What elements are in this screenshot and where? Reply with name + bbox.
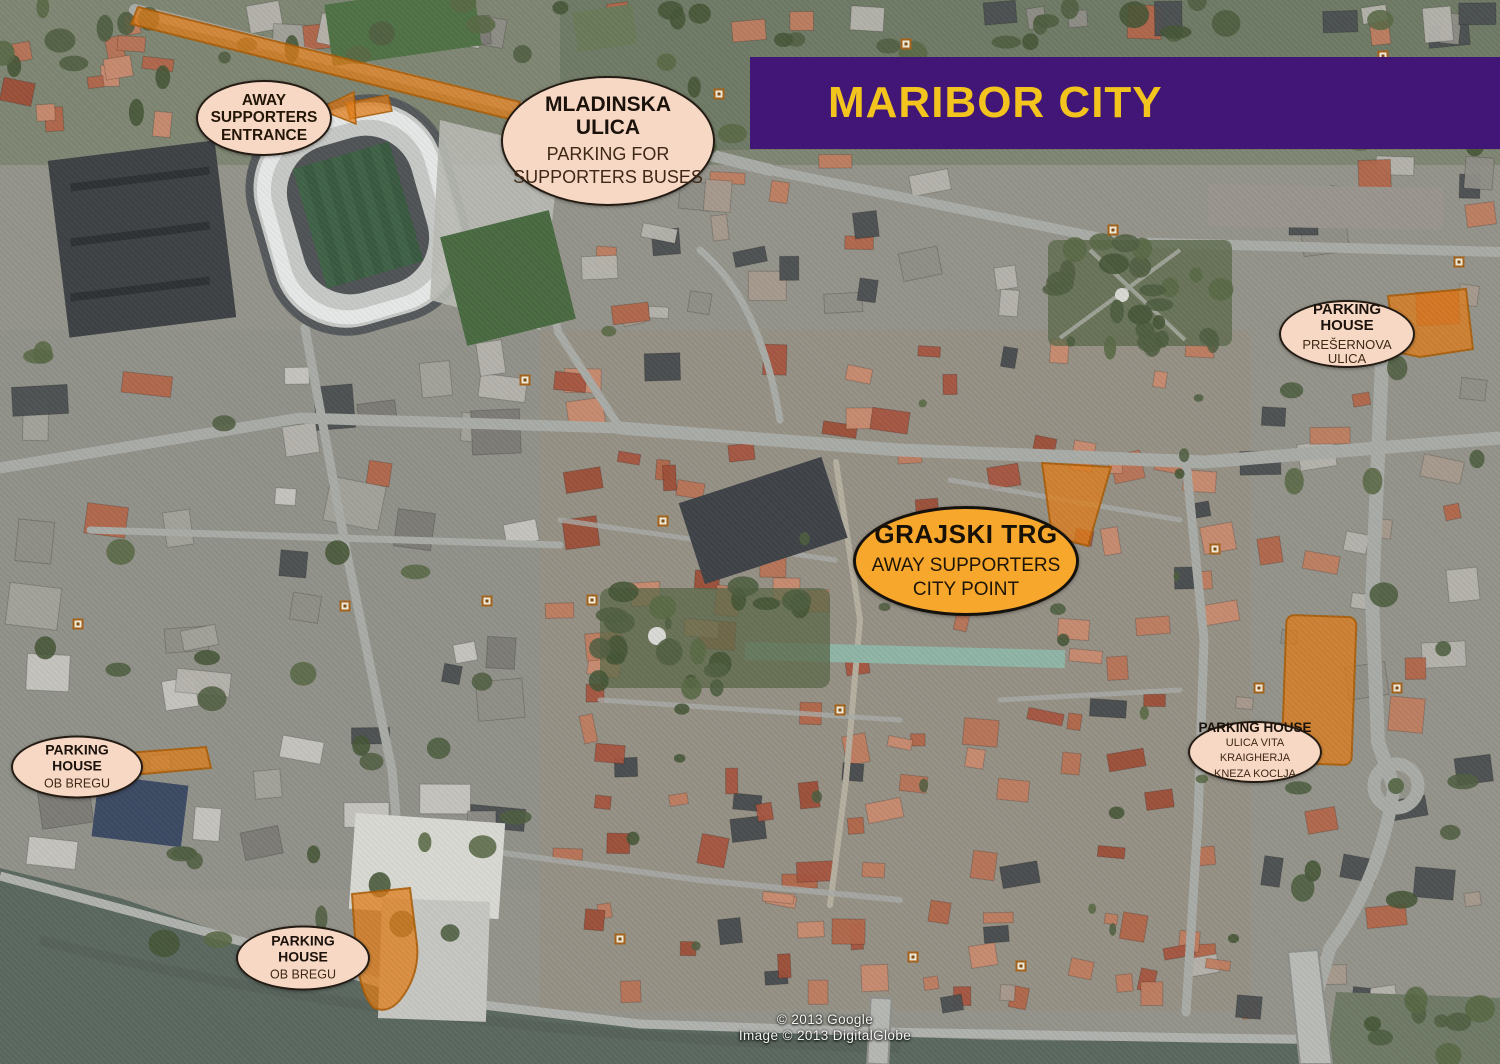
maribor-city-map-page: MARIBOR CITY AWAY SUPPORTERS ENTRANCE ML… bbox=[0, 0, 1500, 1064]
label-title: PARKING HOUSE bbox=[1198, 721, 1311, 736]
label-title: PARKING HOUSE bbox=[21, 743, 133, 774]
label-line: OB BREGU bbox=[270, 969, 336, 983]
label-line: OB BREGU bbox=[44, 778, 110, 792]
satellite-basemap bbox=[0, 0, 1500, 1064]
label-line: PREŠERNOVA ULICA bbox=[1289, 338, 1405, 367]
label-parking-house-presernova: PARKING HOUSE PREŠERNOVA ULICA bbox=[1279, 300, 1415, 368]
attribution-digitalglobe: Image © 2013 DigitalGlobe bbox=[655, 1028, 995, 1043]
label-title: MLADINSKA ULICA bbox=[511, 93, 705, 139]
label-title: PARKING HOUSE bbox=[246, 934, 360, 965]
label-line: CITY POINT bbox=[913, 578, 1019, 602]
label-line: ENTRANCE bbox=[221, 127, 307, 144]
label-line: KNEZA KOCLJA bbox=[1214, 767, 1296, 783]
label-line: AWAY SUPPORTERS bbox=[872, 554, 1061, 578]
label-line: PARKING FOR bbox=[547, 143, 670, 166]
label-title: PARKING HOUSE bbox=[1289, 302, 1405, 335]
label-title: GRAJSKI TRG bbox=[874, 520, 1057, 549]
map-attribution: © 2013 Google Image © 2013 DigitalGlobe bbox=[655, 1012, 995, 1043]
attribution-google: © 2013 Google bbox=[655, 1012, 995, 1027]
label-away-supporters-entrance: AWAY SUPPORTERS ENTRANCE bbox=[196, 80, 332, 156]
label-parking-house-ob-bregu-north: PARKING HOUSE OB BREGU bbox=[11, 736, 143, 799]
title-banner: MARIBOR CITY bbox=[750, 57, 1500, 149]
label-grajski-trg: GRAJSKI TRG AWAY SUPPORTERS CITY POINT bbox=[853, 506, 1079, 616]
label-mladinska-ulica: MLADINSKA ULICA PARKING FOR SUPPORTERS B… bbox=[501, 76, 715, 206]
label-line: AWAY bbox=[242, 92, 286, 109]
page-title: MARIBOR CITY bbox=[828, 78, 1163, 128]
label-parking-house-kraigherja: PARKING HOUSE ULICA VITA KRAIGHERJA KNEZ… bbox=[1188, 721, 1322, 783]
label-parking-house-ob-bregu-south: PARKING HOUSE OB BREGU bbox=[236, 926, 370, 991]
label-line: SUPPORTERS bbox=[211, 109, 318, 126]
label-line: SUPPORTERS BUSES bbox=[513, 166, 703, 189]
label-line: ULICA VITA KRAIGHERJA bbox=[1198, 736, 1312, 768]
